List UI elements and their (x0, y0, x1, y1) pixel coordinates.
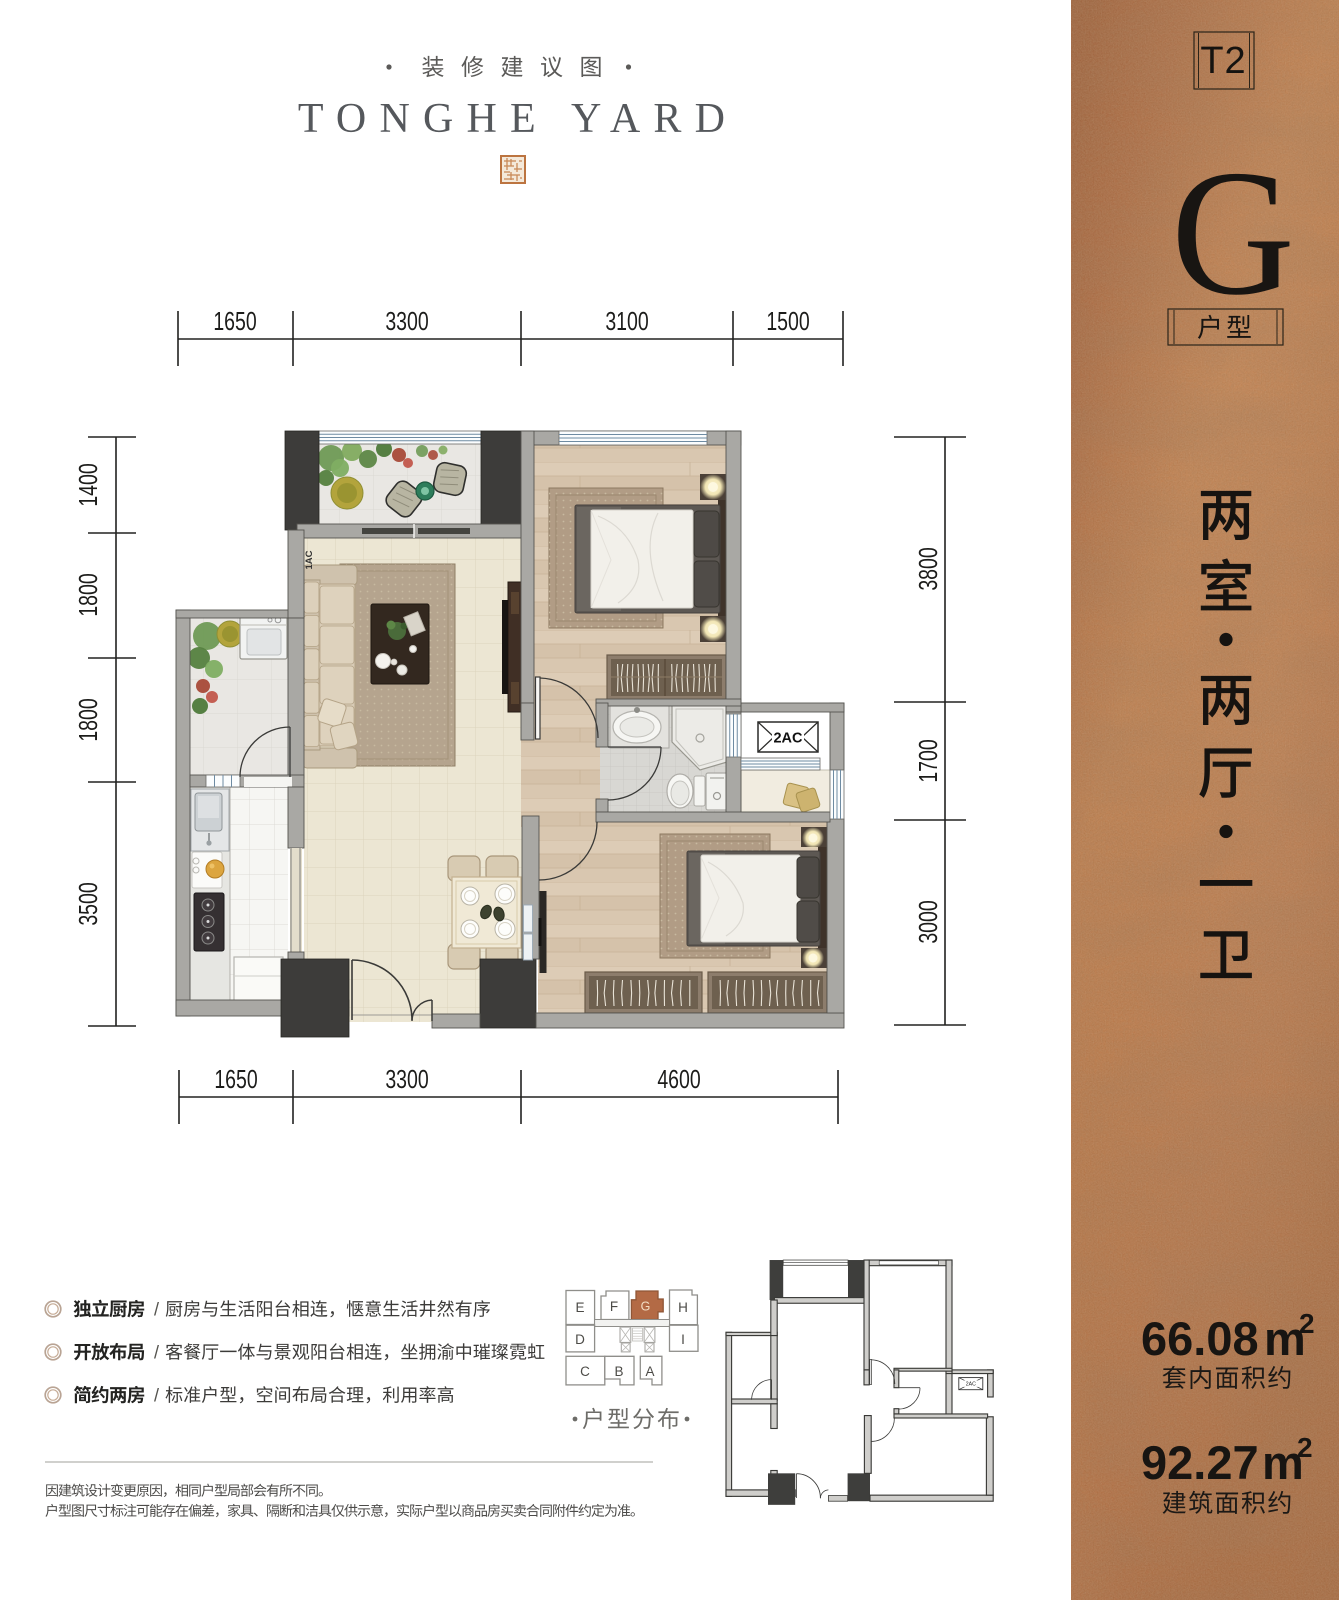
svg-text:3300: 3300 (385, 1064, 428, 1093)
svg-text:1650: 1650 (213, 306, 256, 335)
svg-text:2: 2 (1297, 1432, 1313, 1463)
svg-text:G: G (641, 1300, 651, 1314)
svg-text:TONGHE YARD: TONGHE YARD (298, 96, 738, 142)
svg-text:1800: 1800 (73, 698, 102, 741)
svg-text:H: H (678, 1300, 688, 1315)
svg-text:F: F (610, 1299, 618, 1314)
svg-text:3500: 3500 (73, 882, 102, 925)
svg-text:G: G (1171, 133, 1294, 332)
svg-text:66.08: 66.08 (1141, 1312, 1259, 1365)
svg-text:1650: 1650 (214, 1064, 257, 1093)
svg-text:A: A (645, 1364, 654, 1379)
svg-text:1800: 1800 (73, 573, 102, 616)
svg-text:3300: 3300 (385, 306, 428, 335)
svg-text:3800: 3800 (913, 547, 942, 590)
svg-text:92.27: 92.27 (1141, 1436, 1259, 1489)
svg-text:/: / (154, 1343, 159, 1363)
svg-text:/: / (154, 1300, 159, 1320)
svg-text:3000: 3000 (913, 900, 942, 943)
svg-text:4600: 4600 (657, 1064, 700, 1093)
svg-text:2AC: 2AC (773, 731, 803, 747)
svg-text:I: I (681, 1332, 685, 1347)
svg-text:C: C (580, 1364, 590, 1379)
svg-text:1500: 1500 (766, 306, 809, 335)
svg-text:2AC: 2AC (966, 1381, 976, 1387)
svg-text:T2: T2 (1200, 40, 1246, 82)
svg-text:D: D (575, 1332, 585, 1347)
svg-text:1700: 1700 (913, 739, 942, 782)
svg-text:/: / (154, 1386, 159, 1406)
svg-text:2: 2 (1299, 1308, 1315, 1339)
svg-text:1400: 1400 (73, 463, 102, 506)
svg-text:E: E (575, 1300, 584, 1315)
svg-text:1AC: 1AC (304, 550, 315, 569)
svg-text:3100: 3100 (605, 306, 648, 335)
svg-text:B: B (614, 1364, 623, 1379)
